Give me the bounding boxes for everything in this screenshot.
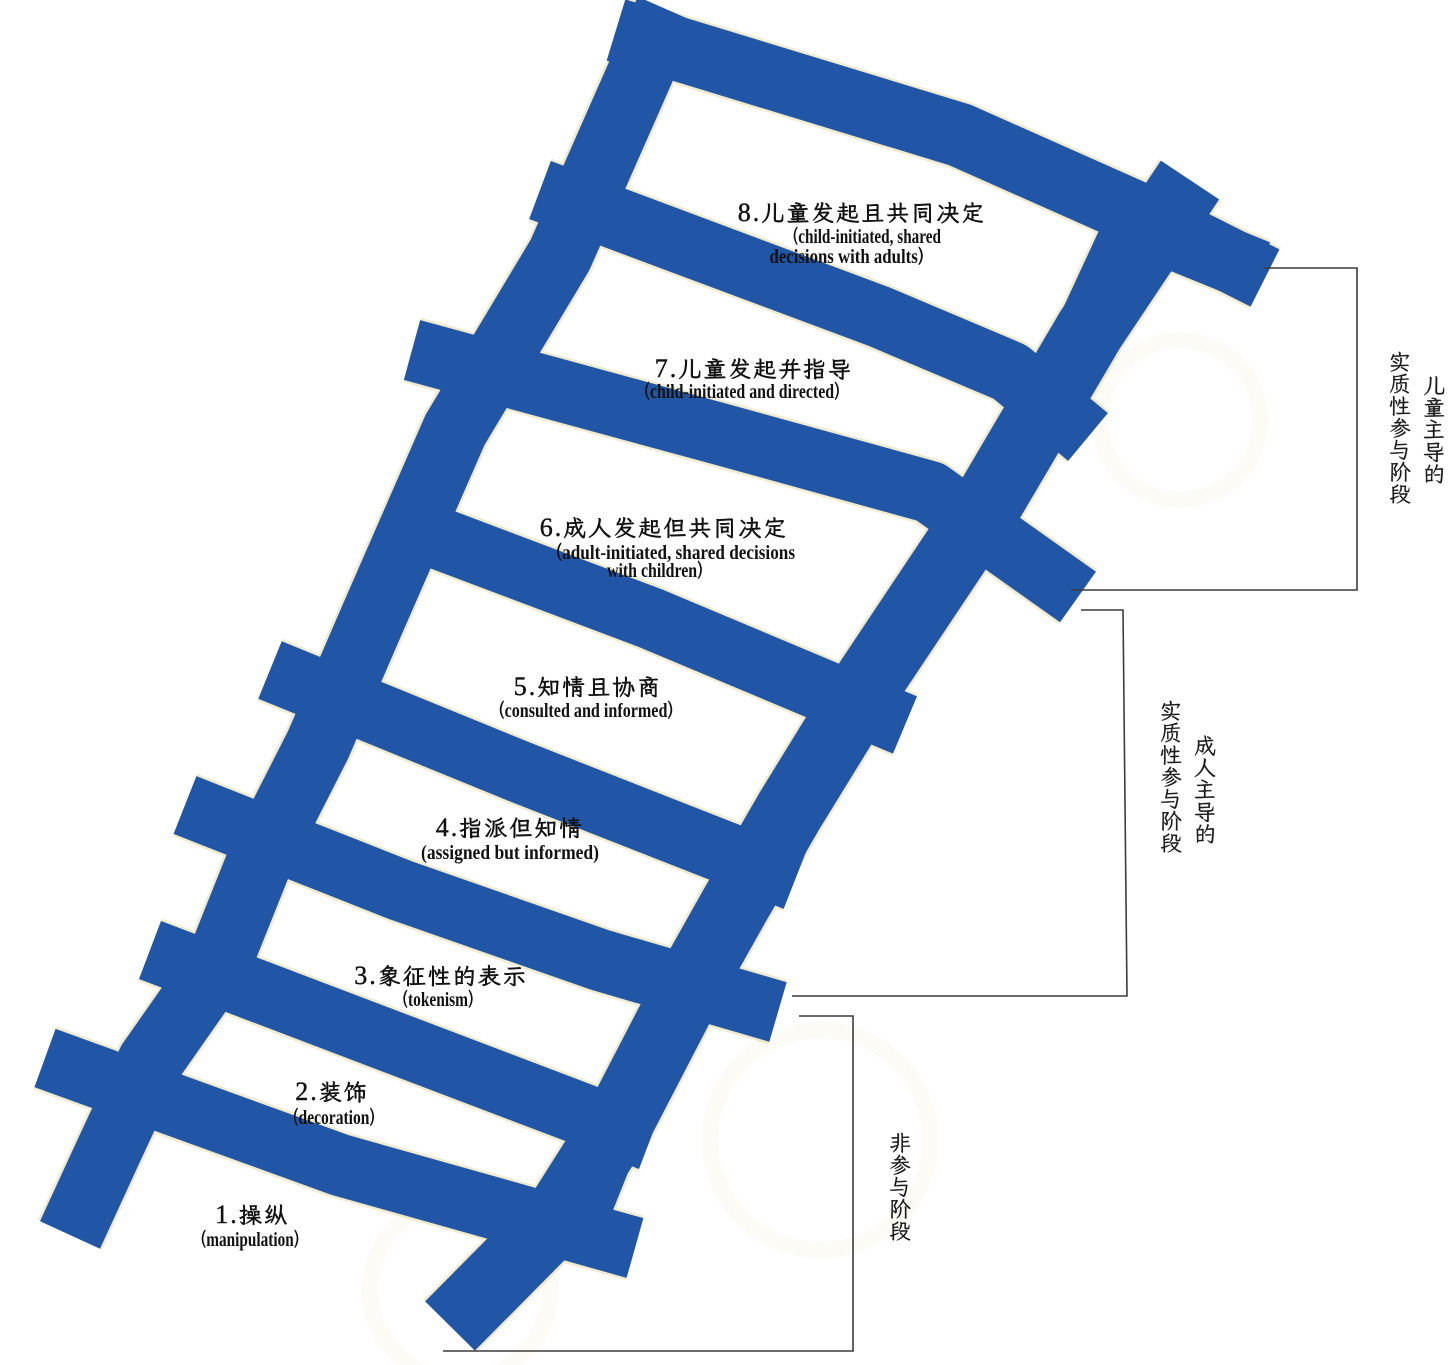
svg-text:（manipulation）: （manipulation） <box>191 1229 309 1251</box>
svg-text:7.儿童发起并指导: 7.儿童发起并指导 <box>655 353 854 384</box>
svg-text:5.知情且协商: 5.知情且协商 <box>514 671 663 702</box>
svg-text:段: 段 <box>889 1217 911 1246</box>
svg-text:1.操纵: 1.操纵 <box>215 1199 289 1230</box>
svg-text:6.成人发起但共同决定: 6.成人发起但共同决定 <box>540 512 789 543</box>
svg-text:2.装饰: 2.装饰 <box>295 1076 369 1107</box>
svg-text:（child-initiated and directed）: （child-initiated and directed） <box>634 381 850 403</box>
svg-text:4.指派但知情: 4.指派但知情 <box>436 812 585 843</box>
svg-text:（tokenism）: （tokenism） <box>393 989 484 1011</box>
svg-text:段: 段 <box>1389 480 1411 509</box>
svg-text:的: 的 <box>1194 820 1216 849</box>
svg-text:decisions with adults）: decisions with adults） <box>770 246 935 268</box>
svg-text:3.象征性的表示: 3.象征性的表示 <box>354 960 528 991</box>
svg-text:(assigned but informed): (assigned but informed) <box>421 843 599 864</box>
svg-text:的: 的 <box>1423 460 1445 489</box>
svg-text:段: 段 <box>1160 829 1182 858</box>
svg-text:8.儿童发起且共同决定: 8.儿童发起且共同决定 <box>738 197 987 228</box>
svg-text:（child-initiated, shared: （child-initiated, shared <box>783 226 941 248</box>
svg-text:with children）: with children） <box>607 560 713 582</box>
svg-text:（decoration）: （decoration） <box>283 1107 385 1129</box>
svg-text:（consulted and informed）: （consulted and informed） <box>489 700 684 722</box>
